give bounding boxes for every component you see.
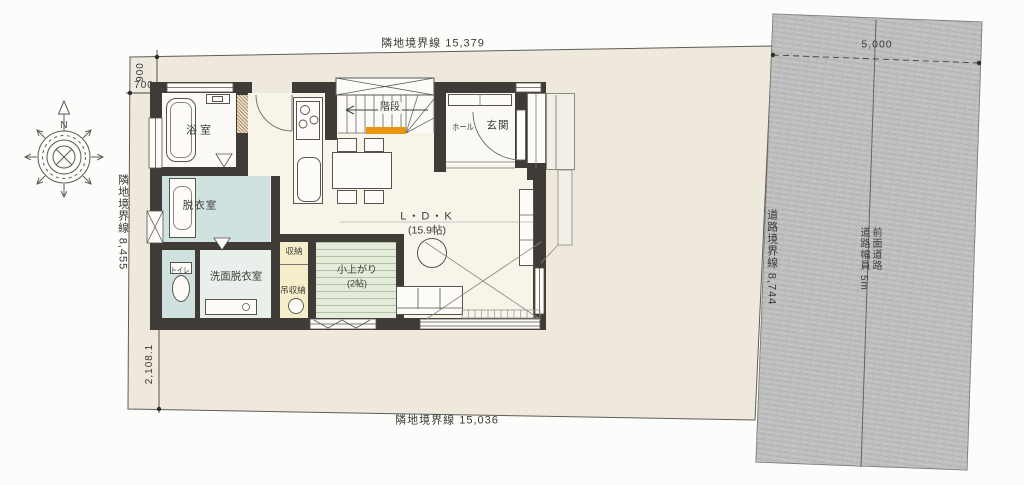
boundary-top-label: 隣地境界線 15,379: [381, 37, 485, 50]
room-label-bath: 浴室: [186, 124, 214, 137]
sofa-cushion-lines: [397, 288, 462, 309]
bay-window: [336, 78, 434, 95]
room-label-tatami: 小上がり: [337, 265, 377, 277]
washroom-door-mark: [214, 238, 230, 250]
room-label-ldk: L・D・K: [400, 210, 453, 223]
road-width-dim: 5,000: [861, 39, 892, 52]
front-road-name: 前面道路: [869, 227, 881, 291]
dim-900: 900: [135, 62, 147, 82]
room-label-storage: 収納: [285, 246, 302, 256]
entrance-door: [473, 110, 526, 160]
pocket-door-hatch: [237, 95, 248, 133]
stove-burners: [299, 106, 318, 129]
hanging-storage-circle: [289, 299, 304, 314]
back-door: [256, 95, 292, 131]
dim-2108: 2,108.1: [144, 344, 156, 384]
room-label-entrance: 玄関: [487, 120, 510, 133]
room-label-hanging-storage: 吊収納: [280, 285, 306, 295]
road-boundary-label: 道路境界線 8,744: [764, 209, 777, 306]
room-label-ldk-size: (15.9帖): [408, 225, 446, 238]
room-label-toilet: トイレ: [170, 266, 189, 276]
bath-door-mark: [216, 154, 232, 167]
dim-700: 700: [134, 80, 154, 92]
boundary-left-label: 隣地境界線 8,455: [115, 174, 128, 271]
room-label-hall: ホール: [452, 122, 474, 132]
vanity-faucet: [243, 304, 250, 311]
floor-plan-canvas: N: [0, 0, 1024, 485]
room-label-washroom: 洗面脱衣室: [210, 271, 263, 284]
front-road-width: 道路幅員 5m: [857, 227, 869, 291]
tv-board-lines: [519, 215, 534, 240]
approach-steps: [541, 170, 572, 263]
boundary-bottom-label: 隣地境界線 15,036: [395, 414, 499, 427]
room-label-dressing: 脱衣室: [183, 200, 218, 213]
room-label-stairs: 階段: [378, 102, 402, 114]
stairs-highlight-step: [366, 127, 406, 134]
front-road-label: 前面道路 道路幅員 5m: [857, 227, 881, 291]
room-label-tatami-size: (2帖): [347, 279, 367, 290]
